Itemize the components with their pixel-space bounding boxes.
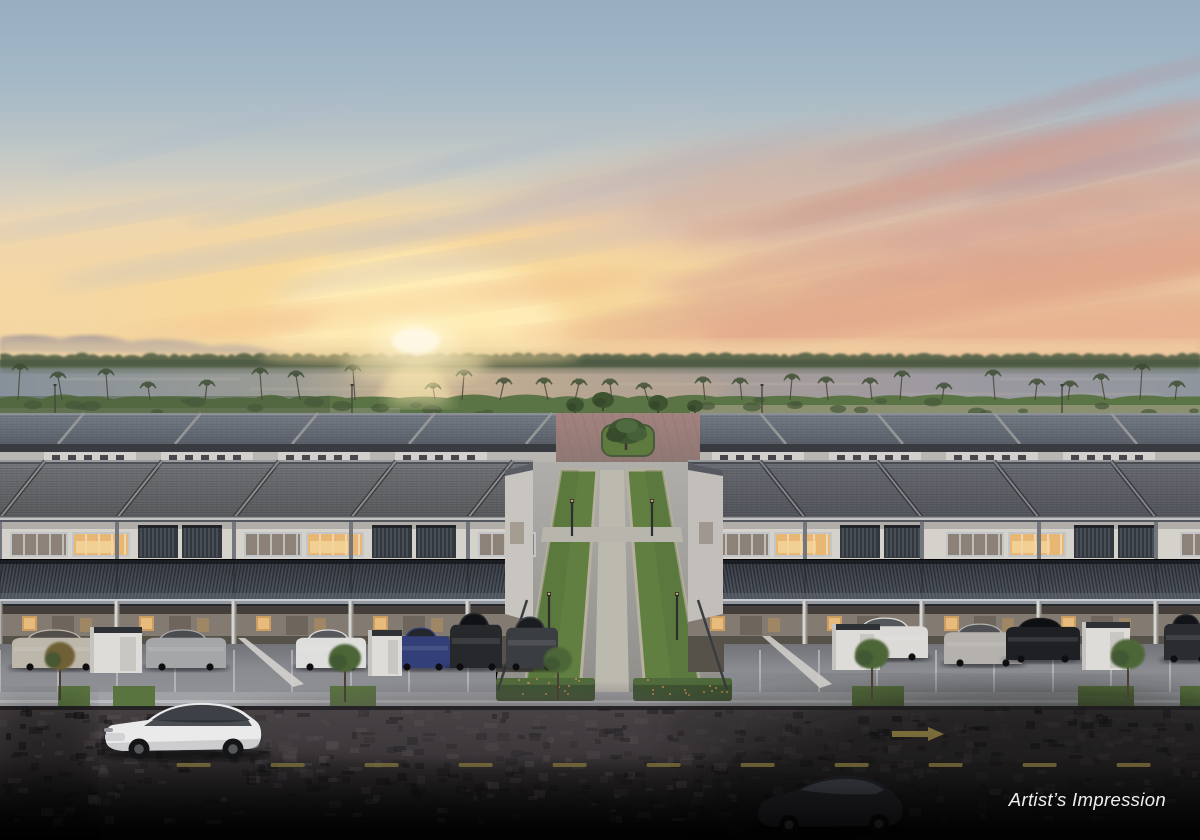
svg-text:Artist’s Impression: Artist’s Impression [1008,789,1166,810]
